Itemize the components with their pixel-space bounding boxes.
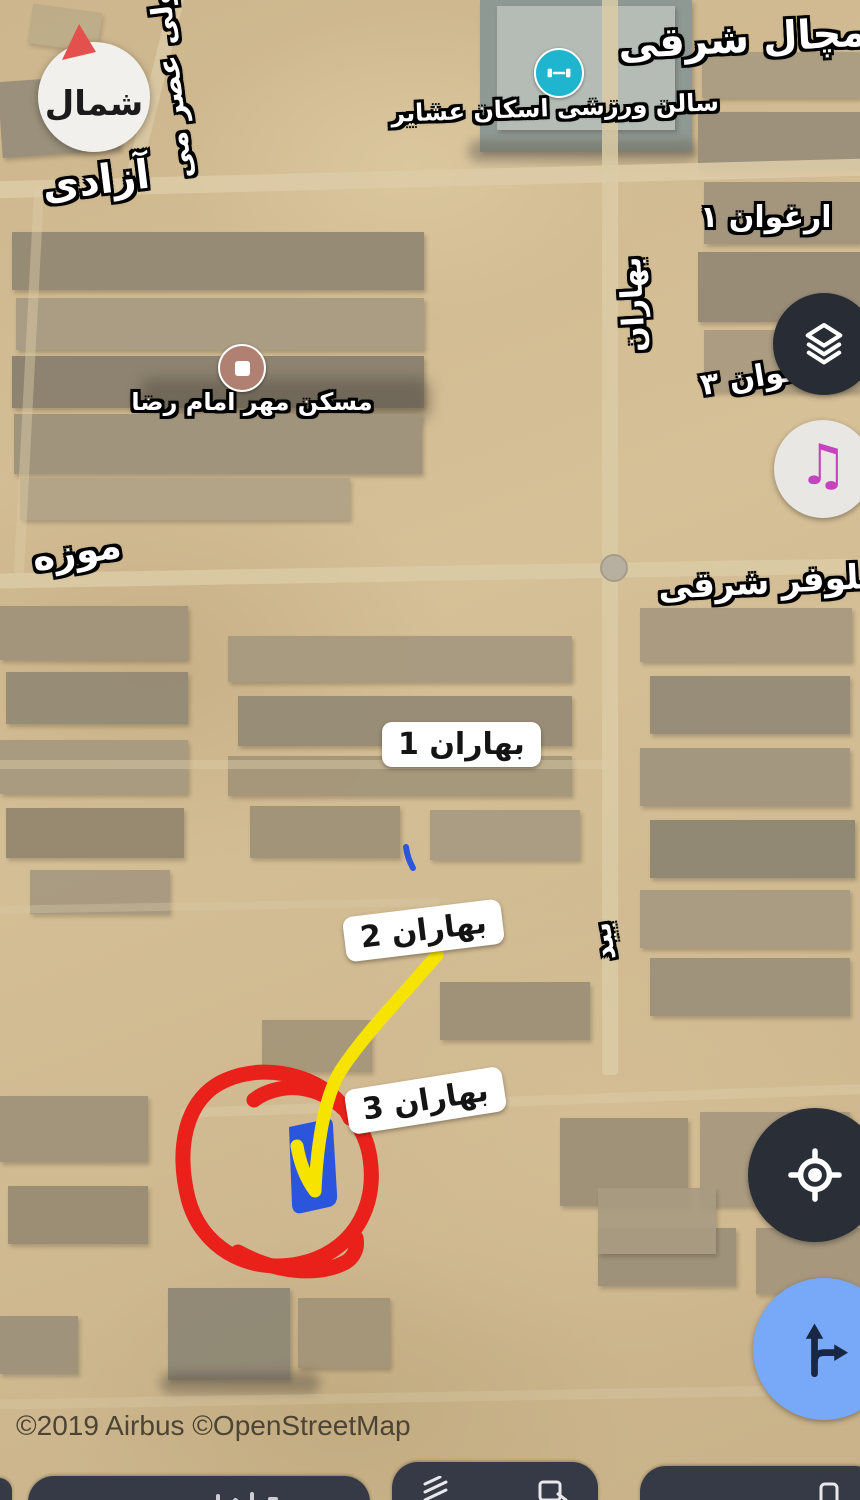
map-building <box>20 478 350 520</box>
map-building <box>16 298 424 350</box>
map-building <box>14 414 422 474</box>
map-building <box>160 1372 320 1394</box>
map-building <box>650 958 850 1016</box>
map-building <box>468 140 698 162</box>
map-building <box>12 232 424 290</box>
map-building <box>640 608 852 662</box>
map-building <box>250 806 400 858</box>
map-building <box>650 820 855 878</box>
blue-tick-annotation <box>406 847 413 868</box>
street-sign-baharan-3: بهاران 3 <box>343 1066 507 1135</box>
square-icon <box>235 361 250 376</box>
map-building <box>6 808 184 858</box>
music-note-icon: ♫ <box>798 438 848 494</box>
highlighted-plot <box>289 1119 337 1213</box>
road-junction-dot <box>600 554 628 582</box>
dumbbell-icon <box>545 59 573 87</box>
map-building <box>168 1288 290 1380</box>
sports-hall-poi[interactable] <box>534 48 584 98</box>
bottom-chip-primary[interactable] <box>28 1476 370 1500</box>
street-label-azadi: آزادی <box>40 152 152 211</box>
north-needle-icon <box>56 22 102 64</box>
bottom-chip-secondary[interactable] <box>392 1462 598 1500</box>
map-building <box>228 636 572 682</box>
map-building <box>650 676 850 734</box>
map-attribution: ©2019 Airbus ©OpenStreetMap <box>16 1410 411 1442</box>
share-box-icon <box>538 1480 568 1500</box>
map-building <box>298 1298 390 1368</box>
phone-icon <box>818 1482 840 1500</box>
map-building <box>0 1096 148 1162</box>
maskan-mehr-label[interactable]: مسکن مهر امام رضا <box>131 388 372 416</box>
yellow-arrow-annotation <box>297 955 437 1191</box>
street-sign-baharan-2: بهاران 2 <box>342 898 505 962</box>
street-label-baharan-vertical: بهاران <box>612 244 653 366</box>
music-button[interactable]: ♫ <box>774 420 860 518</box>
map-building <box>598 1188 716 1254</box>
gps-crosshair-icon <box>782 1142 848 1208</box>
compass-label: شمال <box>45 84 144 124</box>
map-road <box>0 1384 860 1409</box>
map-building <box>640 748 850 806</box>
map-building <box>0 606 188 660</box>
street-sign-baharan-1: بهاران 1 <box>382 722 541 767</box>
bottom-chip-edge[interactable] <box>0 1478 12 1500</box>
map-building <box>640 890 850 948</box>
maskan-mehr-poi[interactable] <box>218 344 266 392</box>
map-building <box>6 672 188 724</box>
directions-button[interactable] <box>753 1278 860 1420</box>
street-label-bid-vertical: بید <box>580 899 626 984</box>
satellite-map-view[interactable]: آزادی ولی عصر می مچال شرقی ارغوان ۱ ارغو… <box>0 0 860 1500</box>
layers-icon <box>798 318 850 370</box>
map-building <box>430 810 580 860</box>
map-building <box>0 1316 78 1374</box>
directions-icon <box>789 1314 859 1384</box>
list-lines-icon <box>422 1476 450 1500</box>
street-label-arghavan-1: ارغوان ۱ <box>700 200 832 235</box>
map-building <box>262 1020 372 1072</box>
map-building <box>440 982 590 1040</box>
bottom-chip-tertiary[interactable] <box>640 1466 860 1500</box>
map-building <box>8 1186 148 1244</box>
